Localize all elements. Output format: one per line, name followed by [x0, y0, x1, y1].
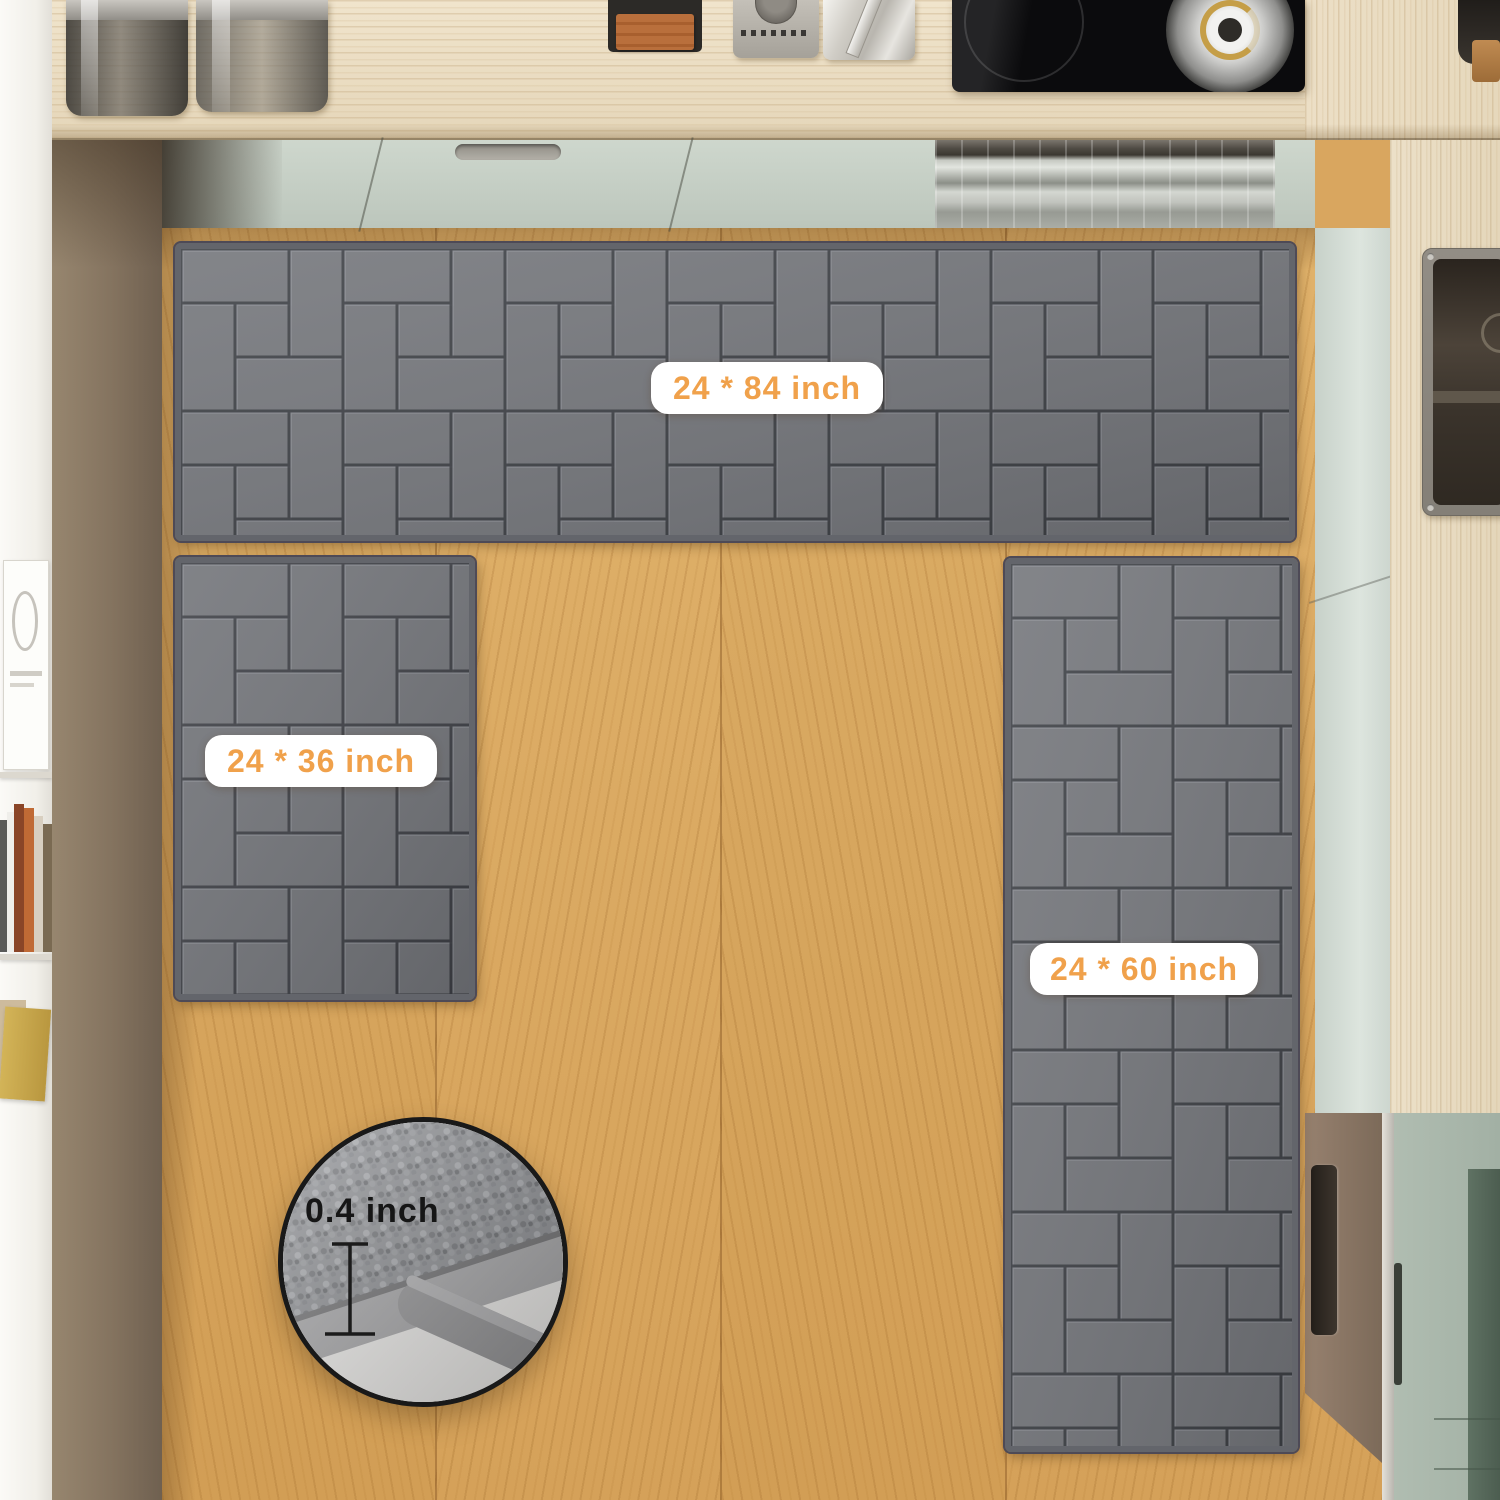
- book-spine: [43, 824, 52, 952]
- cabinet-seam: [668, 137, 693, 231]
- rug-runner-60: [1005, 558, 1298, 1452]
- mint-cabinet-column: [1315, 228, 1390, 1118]
- book-spine: [14, 804, 24, 952]
- drawer-seam: [1434, 1418, 1500, 1420]
- cabinet-seam: [358, 137, 383, 231]
- wood-cutting-board: [616, 14, 694, 50]
- gold-book: [0, 1007, 51, 1102]
- book-spine: [7, 812, 14, 952]
- taupe-wall: [52, 128, 162, 1500]
- poster-sketch: [12, 591, 38, 651]
- glass-canister: [196, 0, 328, 112]
- shelf-edge: [0, 954, 52, 960]
- kitchen-rug-product-scene: 24 * 84 inch 24 * 36 inch 24 * 60 inch: [0, 0, 1500, 1500]
- drawer-seam: [1434, 1468, 1500, 1470]
- sink-ledge: [1433, 391, 1500, 403]
- size-label-60-text: 24 * 60 inch: [1050, 951, 1238, 988]
- cabinet-edge-trim: [1382, 1113, 1394, 1500]
- book-spine: [24, 808, 34, 952]
- sink-basin: [1433, 259, 1500, 505]
- wood-bracket: [1472, 40, 1500, 82]
- grinder-dial: [755, 0, 797, 24]
- recessed-handle: [455, 144, 561, 160]
- sink-screw: [1427, 504, 1434, 511]
- size-label-60: 24 * 60 inch: [1030, 943, 1258, 995]
- coffee-grinder: [733, 0, 819, 58]
- thickness-detail-inset: 0.4 inch: [278, 1117, 568, 1407]
- size-label-36: 24 * 36 inch: [205, 735, 437, 787]
- book-spine: [0, 820, 7, 952]
- grinder-vents: [741, 30, 811, 36]
- shelf-edge: [0, 772, 52, 778]
- induction-cooktop: [952, 0, 1305, 92]
- shelf-poster: [3, 560, 49, 770]
- size-label-84: 24 * 84 inch: [651, 362, 883, 414]
- book-spine: [34, 816, 43, 952]
- dark-green-panel: [1468, 1169, 1500, 1500]
- chrome-kettle: [823, 0, 915, 60]
- size-label-36-text: 24 * 36 inch: [227, 743, 415, 780]
- kitchen-counter: [52, 0, 1500, 140]
- kitchen-sink: [1422, 248, 1500, 516]
- book-row: [0, 802, 52, 952]
- cabinet-seam: [1309, 574, 1395, 604]
- stainless-dishwasher: [935, 140, 1275, 228]
- canister-reflection: [212, 0, 230, 112]
- left-wall-shelves: [0, 0, 52, 1500]
- kettle-handle: [846, 0, 883, 58]
- poster-text-line: [10, 683, 34, 687]
- inset-closeup-graphic: [283, 1122, 563, 1402]
- poster-text-line: [10, 671, 42, 676]
- green-cabinet: [1394, 1113, 1500, 1500]
- glass-canister: [66, 0, 188, 116]
- mint-cabinet-band: [162, 140, 1315, 228]
- sink-screw: [1427, 253, 1434, 260]
- cabinet-groove-handle: [1311, 1165, 1337, 1335]
- canister-reflection: [81, 0, 98, 116]
- right-counter: [1390, 140, 1500, 1120]
- moka-center: [1218, 18, 1242, 42]
- cabinet-handle-bar: [1394, 1263, 1402, 1385]
- thickness-label: 0.4 inch: [305, 1192, 440, 1231]
- size-label-84-text: 24 * 84 inch: [673, 370, 861, 407]
